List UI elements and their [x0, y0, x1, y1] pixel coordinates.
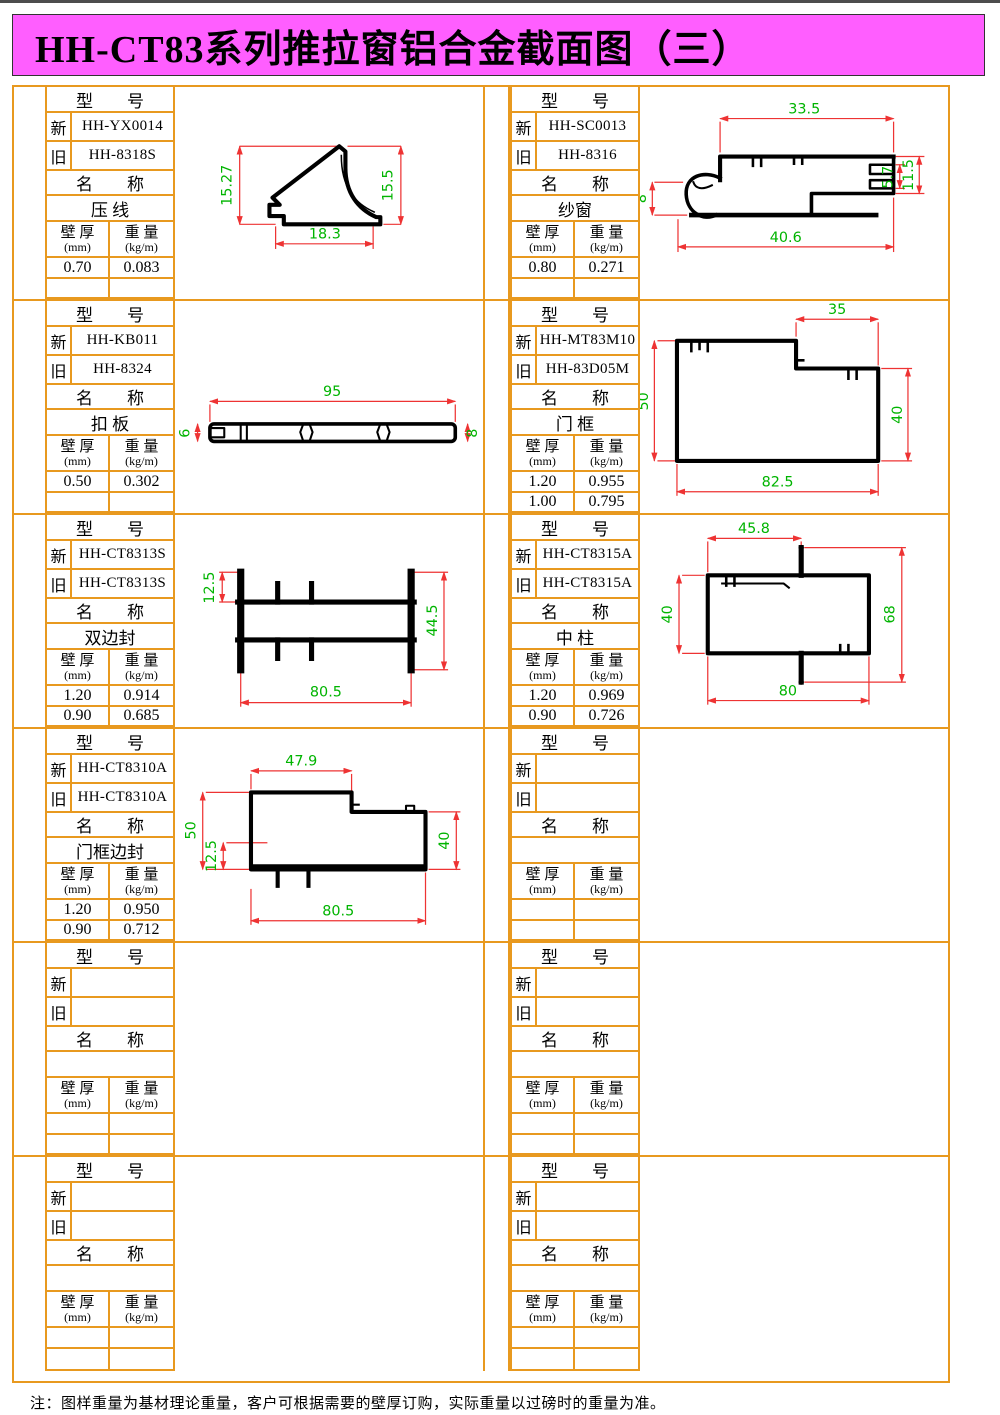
weight-value: 0.685 [110, 707, 175, 727]
drawing-area: 33.5 8 5.7 11.5 40.6 [640, 87, 948, 299]
new-label: 新 [47, 327, 72, 356]
spec-table: 型 号 新 旧 名 称 壁 厚(mm) 重 量(kg/m) [510, 729, 640, 941]
model-header: 型 号 [512, 1157, 640, 1183]
left-margin-strip [14, 87, 45, 299]
panel-shuangbianfeng: 型 号 新 HH-CT8313S 旧 HH-CT8313S 名 称 双边封 壁 … [45, 515, 483, 727]
weight-value [110, 279, 175, 299]
weight-value [575, 900, 640, 921]
wall-value [47, 279, 110, 299]
old-label: 旧 [512, 356, 537, 385]
drawing-area: 35 50 40 82.5 [640, 301, 948, 513]
new-label: 新 [47, 969, 72, 998]
new-model [537, 1183, 640, 1212]
drawing-area: 12.5 44.5 80.5 [175, 515, 483, 727]
drawing-area [640, 943, 948, 1155]
wall-value [47, 1349, 110, 1371]
dim-label: 15.27 [219, 165, 235, 206]
center-divider-strip [483, 1157, 510, 1371]
wall-header: 壁 厚(mm) [47, 1292, 110, 1328]
weight-value [110, 1135, 175, 1155]
dim-label: 80.5 [310, 684, 342, 700]
weight-value [575, 1114, 640, 1135]
profile-name [512, 838, 640, 864]
wall-value [47, 1135, 110, 1155]
weight-header: 重 量(kg/m) [575, 864, 640, 900]
new-model: HH-YX0014 [72, 113, 175, 142]
old-label: 旧 [512, 784, 537, 813]
page-title: HH-CT83系列推拉窗铝合金截面图（三） [35, 18, 751, 73]
new-model [537, 969, 640, 998]
weight-header: 重 量(kg/m) [575, 436, 640, 472]
name-header: 名 称 [47, 599, 175, 624]
old-model: HH-CT8315A [537, 570, 640, 599]
model-header: 型 号 [512, 515, 640, 541]
old-label: 旧 [512, 998, 537, 1027]
profile-name [47, 1266, 175, 1292]
weight-value: 0.302 [110, 472, 175, 493]
grid-row-2: 型 号 新 HH-KB011 旧 HH-8324 名 称 扣 板 壁 厚(mm)… [14, 301, 948, 515]
old-model [72, 998, 175, 1027]
center-divider-strip [483, 515, 510, 727]
new-label: 新 [47, 113, 72, 142]
weight-value: 0.712 [110, 921, 175, 941]
grid-row-4: 型 号 新 HH-CT8310A 旧 HH-CT8310A 名 称 门框边封 壁… [14, 729, 948, 943]
wall-value: 0.80 [512, 258, 575, 279]
wall-header: 壁 厚(mm) [512, 222, 575, 258]
grid-row-1: 型 号 新 HH-YX0014 旧 HH-8318S 名 称 压 线 壁 厚(m… [14, 87, 948, 301]
spec-table: 型 号 新 HH-CT8310A 旧 HH-CT8310A 名 称 门框边封 壁… [45, 729, 175, 941]
menkuangbianfeng-profile-drawing: 47.9 50 12.5 40 80.5 [175, 729, 483, 941]
wall-header: 壁 厚(mm) [512, 864, 575, 900]
new-model: HH-CT8315A [537, 541, 640, 570]
panel-empty-5: 型 号 新 旧 名 称 壁 厚(mm) 重 量(kg/m) [510, 1157, 948, 1371]
weight-value: 0.914 [110, 686, 175, 707]
spec-table: 型 号 新 旧 名 称 壁 厚(mm) 重 量(kg/m) [45, 1157, 175, 1371]
panel-menkuangbianfeng: 型 号 新 HH-CT8310A 旧 HH-CT8310A 名 称 门框边封 壁… [45, 729, 483, 941]
name-header: 名 称 [47, 1241, 175, 1266]
dim-label: 6 [177, 429, 193, 438]
center-divider-strip [483, 301, 510, 513]
old-label: 旧 [47, 1212, 72, 1241]
weight-value: 0.950 [110, 900, 175, 921]
menkuang-profile-drawing: 35 50 40 82.5 [640, 301, 948, 513]
name-header: 名 称 [47, 385, 175, 410]
panel-shachuang: 型 号 新 HH-SC0013 旧 HH-8316 名 称 纱窗 壁 厚(mm)… [510, 87, 948, 299]
dim-label: 12.5 [204, 840, 220, 872]
yaxian-profile-drawing: 15.27 15.5 18.3 [175, 87, 483, 299]
weight-header: 重 量(kg/m) [110, 1078, 175, 1114]
weight-value [575, 1328, 640, 1349]
profile-name: 门框边封 [47, 838, 175, 864]
weight-header: 重 量(kg/m) [110, 864, 175, 900]
profile-name: 压 线 [47, 196, 175, 222]
grid-row-5: 型 号 新 旧 名 称 壁 厚(mm) 重 量(kg/m) 型 号 新 [14, 943, 948, 1157]
dim-label: 12.5 [202, 572, 218, 604]
model-header: 型 号 [47, 943, 175, 969]
dim-label: 82.5 [762, 475, 794, 491]
profile-name [512, 1266, 640, 1292]
grid-row-6: 型 号 新 旧 名 称 壁 厚(mm) 重 量(kg/m) 型 号 新 [14, 1157, 948, 1371]
weight-header: 重 量(kg/m) [575, 222, 640, 258]
wall-header: 壁 厚(mm) [512, 650, 575, 686]
old-model: HH-8324 [72, 356, 175, 385]
wall-value: 1.20 [47, 900, 110, 921]
name-header: 名 称 [512, 1027, 640, 1052]
left-margin-strip [14, 1157, 45, 1371]
old-label: 旧 [47, 784, 72, 813]
panel-zhongzhu: 型 号 新 HH-CT8315A 旧 HH-CT8315A 名 称 中 柱 壁 … [510, 515, 948, 727]
wall-header: 壁 厚(mm) [512, 1078, 575, 1114]
new-model: HH-MT83M10 [537, 327, 640, 356]
old-model: HH-8316 [537, 142, 640, 171]
footer-note: 注：图样重量为基材理论重量，客户可根据需要的壁厚订购，实际重量以过磅时的重量为准… [30, 1392, 666, 1413]
dim-label: 44.5 [425, 604, 441, 636]
panel-empty-4: 型 号 新 旧 名 称 壁 厚(mm) 重 量(kg/m) [45, 1157, 483, 1371]
dim-label: 33.5 [788, 101, 820, 117]
old-model [537, 1212, 640, 1241]
drawing-area [640, 1157, 948, 1371]
weight-value: 0.083 [110, 258, 175, 279]
dim-label: 18.3 [309, 227, 341, 243]
dim-label: 15.5 [381, 169, 397, 201]
wall-header: 壁 厚(mm) [47, 1078, 110, 1114]
wall-value [512, 1135, 575, 1155]
dim-label: 11.5 [901, 159, 917, 191]
panel-grid: 型 号 新 HH-YX0014 旧 HH-8318S 名 称 压 线 壁 厚(m… [12, 85, 950, 1383]
new-model: HH-CT8313S [72, 541, 175, 570]
weight-value [110, 1114, 175, 1135]
profile-name [47, 1052, 175, 1078]
left-margin-strip [14, 943, 45, 1155]
weight-value: 0.955 [575, 472, 640, 493]
drawing-area [640, 729, 948, 941]
spec-table: 型 号 新 HH-CT8315A 旧 HH-CT8315A 名 称 中 柱 壁 … [510, 515, 640, 727]
wall-value [47, 1328, 110, 1349]
wall-value: 1.20 [512, 686, 575, 707]
drawing-area [175, 943, 483, 1155]
panel-empty-1: 型 号 新 旧 名 称 壁 厚(mm) 重 量(kg/m) [510, 729, 948, 941]
weight-value: 0.726 [575, 707, 640, 727]
wall-value: 1.20 [47, 686, 110, 707]
dim-label: 8 [465, 429, 481, 438]
name-header: 名 称 [512, 599, 640, 624]
wall-header: 壁 厚(mm) [47, 436, 110, 472]
new-label: 新 [47, 541, 72, 570]
wall-value: 0.70 [47, 258, 110, 279]
drawing-area: 45.8 40 68 80 [640, 515, 948, 727]
weight-value [110, 493, 175, 513]
wall-header: 壁 厚(mm) [47, 650, 110, 686]
weight-header: 重 量(kg/m) [110, 650, 175, 686]
grid-row-3: 型 号 新 HH-CT8313S 旧 HH-CT8313S 名 称 双边封 壁 … [14, 515, 948, 729]
name-header: 名 称 [512, 1241, 640, 1266]
drawing-area: 47.9 50 12.5 40 80.5 [175, 729, 483, 941]
spec-table: 型 号 新 HH-SC0013 旧 HH-8316 名 称 纱窗 壁 厚(mm)… [510, 87, 640, 299]
new-label: 新 [512, 755, 537, 784]
model-header: 型 号 [512, 943, 640, 969]
panel-empty-2: 型 号 新 旧 名 称 壁 厚(mm) 重 量(kg/m) [45, 943, 483, 1155]
weight-header: 重 量(kg/m) [110, 436, 175, 472]
center-divider-strip [483, 87, 510, 299]
drawing-area: 15.27 15.5 18.3 [175, 87, 483, 299]
dim-label: 40 [437, 832, 453, 850]
new-model [72, 1183, 175, 1212]
wall-value: 0.50 [47, 472, 110, 493]
profile-name [512, 1052, 640, 1078]
name-header: 名 称 [47, 813, 175, 838]
wall-value [512, 279, 575, 299]
wall-value [512, 900, 575, 921]
dim-label: 50 [640, 392, 652, 410]
new-model: HH-SC0013 [537, 113, 640, 142]
dim-label: 40 [890, 406, 906, 424]
old-model: HH-83D05M [537, 356, 640, 385]
weight-value: 0.271 [575, 258, 640, 279]
model-header: 型 号 [47, 729, 175, 755]
model-header: 型 号 [512, 87, 640, 113]
dim-label: 50 [184, 821, 200, 839]
weight-header: 重 量(kg/m) [110, 1292, 175, 1328]
wall-value [47, 1114, 110, 1135]
new-label: 新 [512, 1183, 537, 1212]
zhongzhu-profile-drawing: 45.8 40 68 80 [640, 515, 948, 727]
spec-table: 型 号 新 旧 名 称 壁 厚(mm) 重 量(kg/m) [45, 943, 175, 1155]
name-header: 名 称 [512, 385, 640, 410]
panel-yaxian: 型 号 新 HH-YX0014 旧 HH-8318S 名 称 压 线 壁 厚(m… [45, 87, 483, 299]
old-model [537, 998, 640, 1027]
weight-header: 重 量(kg/m) [575, 1292, 640, 1328]
profile-name: 纱窗 [512, 196, 640, 222]
old-model: HH-CT8310A [72, 784, 175, 813]
center-divider-strip [483, 729, 510, 941]
weight-value [575, 279, 640, 299]
old-label: 旧 [512, 142, 537, 171]
old-model: HH-8318S [72, 142, 175, 171]
name-header: 名 称 [512, 813, 640, 838]
dim-label: 47.9 [285, 754, 317, 770]
shuangbianfeng-profile-drawing: 12.5 44.5 80.5 [175, 515, 483, 727]
drawing-area [175, 1157, 483, 1371]
page-top-rule [0, 0, 1000, 3]
weight-header: 重 量(kg/m) [575, 650, 640, 686]
wall-value [512, 1114, 575, 1135]
wall-value [512, 1328, 575, 1349]
new-label: 新 [47, 1183, 72, 1212]
panel-menkuang: 型 号 新 HH-MT83M10 旧 HH-83D05M 名 称 门 框 壁 厚… [510, 301, 948, 513]
new-label: 新 [512, 327, 537, 356]
wall-value: 0.90 [512, 707, 575, 727]
old-label: 旧 [47, 570, 72, 599]
title-banner: HH-CT83系列推拉窗铝合金截面图（三） [12, 14, 985, 76]
old-label: 旧 [47, 142, 72, 171]
wall-value: 1.20 [512, 472, 575, 493]
new-model: HH-CT8310A [72, 755, 175, 784]
dim-label: 45.8 [738, 521, 770, 537]
left-margin-strip [14, 515, 45, 727]
kouban-profile-drawing: 95 6 8 [175, 301, 483, 513]
weight-value [110, 1349, 175, 1371]
spec-table: 型 号 新 旧 名 称 壁 厚(mm) 重 量(kg/m) [510, 943, 640, 1155]
wall-header: 壁 厚(mm) [512, 1292, 575, 1328]
dim-label: 95 [323, 384, 341, 400]
weight-header: 重 量(kg/m) [575, 1078, 640, 1114]
old-label: 旧 [47, 998, 72, 1027]
new-label: 新 [47, 755, 72, 784]
spec-table: 型 号 新 HH-YX0014 旧 HH-8318S 名 称 压 线 壁 厚(m… [45, 87, 175, 299]
wall-value: 1.00 [512, 493, 575, 513]
dim-label: 40.6 [770, 230, 802, 246]
wall-header: 壁 厚(mm) [512, 436, 575, 472]
old-label: 旧 [47, 356, 72, 385]
new-model [537, 755, 640, 784]
wall-value: 0.90 [47, 921, 110, 941]
new-label: 新 [512, 541, 537, 570]
dim-label: 8 [640, 194, 650, 203]
old-label: 旧 [512, 570, 537, 599]
dim-label: 68 [883, 605, 899, 623]
new-label: 新 [512, 113, 537, 142]
name-header: 名 称 [47, 171, 175, 196]
dim-label: 35 [828, 302, 846, 318]
spec-table: 型 号 新 HH-KB011 旧 HH-8324 名 称 扣 板 壁 厚(mm)… [45, 301, 175, 513]
wall-value [47, 493, 110, 513]
model-header: 型 号 [47, 301, 175, 327]
profile-name: 中 柱 [512, 624, 640, 650]
weight-value: 0.795 [575, 493, 640, 513]
new-label: 新 [512, 969, 537, 998]
weight-value [575, 1135, 640, 1155]
profile-name: 双边封 [47, 624, 175, 650]
panel-kouban: 型 号 新 HH-KB011 旧 HH-8324 名 称 扣 板 壁 厚(mm)… [45, 301, 483, 513]
name-header: 名 称 [512, 171, 640, 196]
model-header: 型 号 [47, 1157, 175, 1183]
spec-table: 型 号 新 旧 名 称 壁 厚(mm) 重 量(kg/m) [510, 1157, 640, 1371]
old-label: 旧 [512, 1212, 537, 1241]
profile-name: 门 框 [512, 410, 640, 436]
model-header: 型 号 [512, 301, 640, 327]
panel-empty-3: 型 号 新 旧 名 称 壁 厚(mm) 重 量(kg/m) [510, 943, 948, 1155]
dim-label: 5.7 [881, 166, 897, 189]
name-header: 名 称 [47, 1027, 175, 1052]
dim-label: 80.5 [322, 904, 354, 920]
left-margin-strip [14, 729, 45, 941]
dim-label: 80 [779, 683, 797, 699]
old-model: HH-CT8313S [72, 570, 175, 599]
wall-header: 壁 厚(mm) [47, 222, 110, 258]
spec-table: 型 号 新 HH-CT8313S 旧 HH-CT8313S 名 称 双边封 壁 … [45, 515, 175, 727]
left-margin-strip [14, 301, 45, 513]
shachuang-profile-drawing: 33.5 8 5.7 11.5 40.6 [640, 87, 948, 299]
wall-value: 0.90 [47, 707, 110, 727]
wall-value [512, 921, 575, 941]
weight-value [575, 1349, 640, 1371]
weight-value [575, 921, 640, 941]
wall-header: 壁 厚(mm) [47, 864, 110, 900]
wall-value [512, 1349, 575, 1371]
old-model [537, 784, 640, 813]
weight-value: 0.969 [575, 686, 640, 707]
model-header: 型 号 [47, 87, 175, 113]
weight-value [110, 1328, 175, 1349]
profile-name: 扣 板 [47, 410, 175, 436]
dim-label: 40 [660, 605, 676, 623]
model-header: 型 号 [47, 515, 175, 541]
drawing-area: 95 6 8 [175, 301, 483, 513]
model-header: 型 号 [512, 729, 640, 755]
new-model: HH-KB011 [72, 327, 175, 356]
new-model [72, 969, 175, 998]
weight-header: 重 量(kg/m) [110, 222, 175, 258]
center-divider-strip [483, 943, 510, 1155]
spec-table: 型 号 新 HH-MT83M10 旧 HH-83D05M 名 称 门 框 壁 厚… [510, 301, 640, 513]
old-model [72, 1212, 175, 1241]
